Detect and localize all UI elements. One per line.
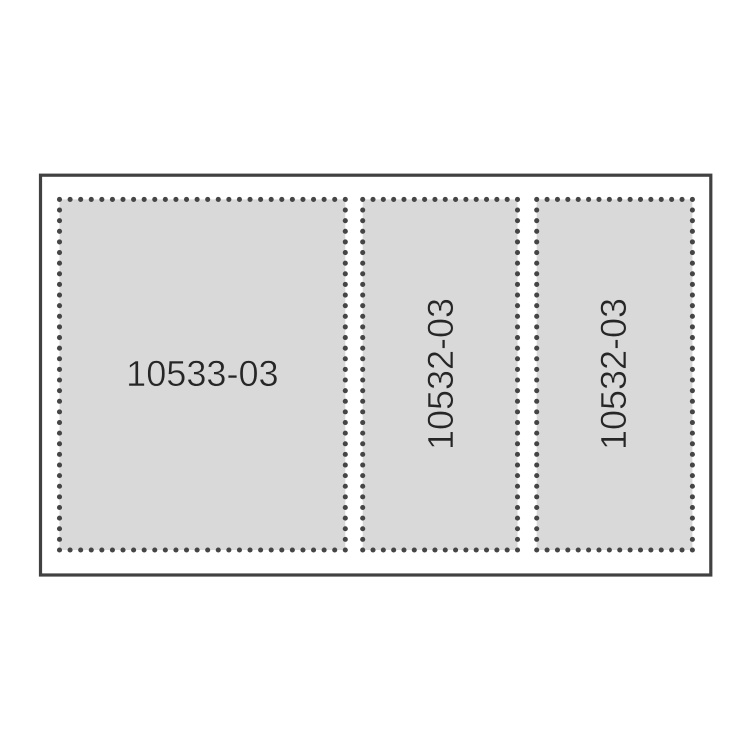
svg-text:10532-03: 10532-03	[420, 298, 461, 450]
svg-text:10532-03: 10532-03	[593, 298, 634, 450]
svg-text:10533-03: 10533-03	[126, 353, 279, 394]
